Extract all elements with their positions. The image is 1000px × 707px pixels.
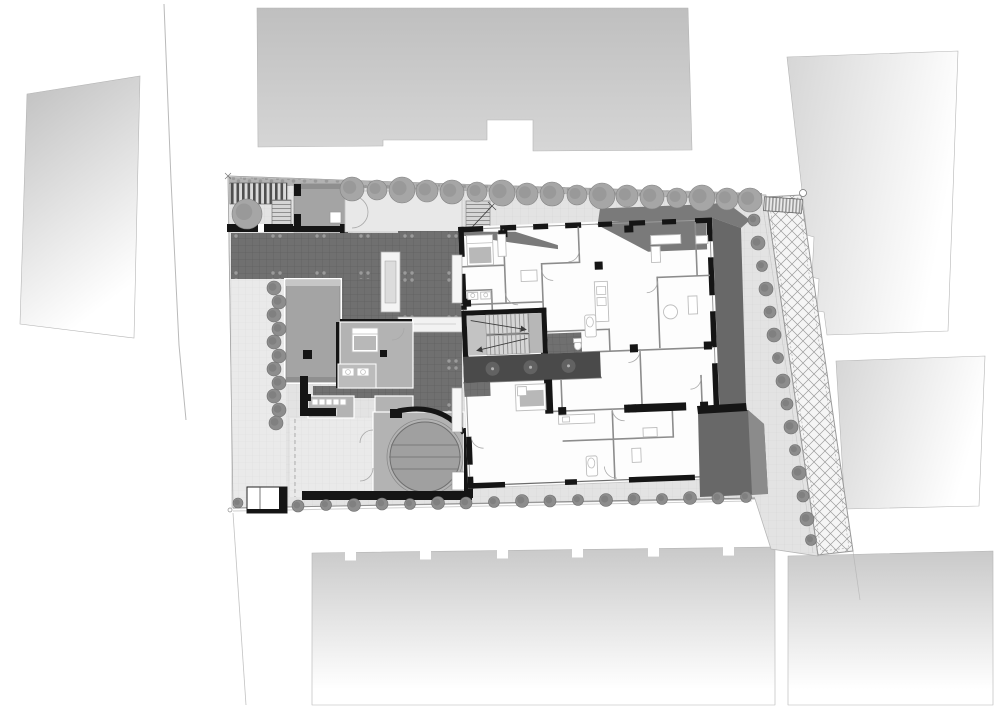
foliage-texture (742, 493, 748, 499)
south-wall (302, 491, 472, 500)
site-plan-canvas (0, 0, 1000, 707)
cabinet (696, 235, 708, 243)
foliage-texture (546, 497, 553, 504)
foliage-texture (794, 468, 802, 476)
kiosk-south-wall (247, 509, 287, 513)
foliage-texture (269, 337, 277, 345)
foliage-texture (574, 496, 580, 502)
garden-wall-gap (258, 224, 264, 232)
bed-blanket (354, 336, 376, 350)
foliage-texture (758, 262, 764, 268)
stair-landing-east (528, 313, 543, 353)
roof-highlight (286, 280, 340, 286)
foliage-texture (433, 498, 440, 505)
foliage-texture (592, 187, 606, 201)
foliage-texture (343, 181, 356, 194)
foliage-texture (274, 351, 282, 359)
foliage-texture (791, 446, 797, 452)
street-edge-west (164, 4, 186, 420)
window-planter-west (452, 255, 462, 303)
neighbor-block-south (312, 547, 775, 705)
foliage-texture (519, 186, 531, 198)
table (521, 270, 537, 282)
tile-light-dots (231, 233, 398, 279)
neighbor-block-northwest (20, 76, 140, 338)
bathtub (586, 456, 598, 476)
foliage-texture (322, 501, 328, 507)
foliage-texture (601, 495, 608, 502)
kiosk-bush (233, 498, 243, 508)
foliage-texture (234, 500, 240, 506)
south-wall-stub (300, 408, 336, 416)
sofa-side (651, 246, 661, 262)
wall-stub (294, 184, 301, 196)
east-building (458, 211, 722, 489)
foliage-texture (274, 405, 282, 413)
foliage-texture (271, 418, 279, 426)
foliage-texture (392, 181, 406, 195)
cabinet (632, 448, 642, 462)
foliage-texture (670, 191, 681, 202)
foliage-texture (443, 184, 456, 197)
foliage-texture (685, 493, 692, 500)
sofa (651, 234, 681, 244)
boundary-line-southwest (233, 513, 246, 705)
foliage-texture (643, 189, 656, 202)
roof-volume-main (286, 280, 340, 382)
pillow (517, 386, 526, 395)
foliage-texture (419, 183, 431, 195)
foliage-texture (778, 376, 786, 384)
foliage-texture (719, 191, 731, 203)
foliage-texture (692, 189, 706, 203)
foliage-texture (741, 192, 754, 205)
foliage-texture (378, 500, 385, 507)
foliage-texture (269, 310, 277, 318)
foliage-texture (802, 514, 810, 522)
foliage-texture (766, 308, 773, 315)
stair-flight-lower (486, 334, 530, 355)
foliage-texture (761, 284, 769, 292)
hall-alcove (452, 472, 466, 490)
dining-table (663, 305, 678, 320)
foliage-texture (630, 495, 637, 502)
foliage-texture (619, 188, 631, 200)
foliage-texture (799, 492, 806, 499)
foliage-texture (406, 500, 412, 506)
foliage-texture (492, 184, 506, 198)
column (303, 350, 312, 359)
foliage-texture (543, 186, 556, 199)
cabinet (643, 427, 657, 437)
neighbor-block-north (257, 8, 692, 151)
survey-marker (800, 190, 807, 197)
foliage-texture (807, 536, 813, 542)
foliage-texture (236, 204, 253, 221)
neighbor-block-east (836, 356, 985, 509)
foliage-texture (370, 183, 381, 194)
foliage-texture (269, 364, 277, 372)
southwest-terrace (290, 418, 373, 497)
foliage-texture (753, 238, 761, 246)
survey-point-southwest (228, 508, 232, 512)
bathtub (585, 315, 597, 337)
site-plan-svg (0, 0, 1000, 707)
garden-wall (293, 226, 342, 232)
rooflight (330, 212, 341, 223)
foliage-texture (714, 494, 721, 501)
specimen-tree (232, 199, 262, 229)
foliage-texture (462, 499, 469, 506)
stair-core (461, 308, 548, 357)
foliage-texture (786, 422, 794, 430)
foliage-texture (517, 496, 524, 503)
stair-landing-west (467, 315, 488, 356)
foliage-texture (269, 283, 277, 291)
foliage-texture (274, 324, 282, 332)
column (380, 350, 387, 357)
tile-patch (464, 382, 491, 397)
kitchen-counter (558, 414, 594, 424)
wall-stub (390, 409, 402, 418)
foliage-texture (783, 400, 790, 407)
foliage-texture (750, 216, 757, 223)
foliage-texture (774, 354, 780, 360)
wardrobe (497, 234, 506, 256)
foliage-texture (294, 502, 301, 509)
window-planter-west (452, 388, 462, 432)
foliage-texture (470, 185, 481, 196)
foliage-texture (658, 495, 664, 501)
foliage-texture (570, 188, 581, 199)
foliage-texture (490, 498, 496, 504)
foliage-texture (274, 378, 282, 386)
planter (385, 261, 396, 303)
wall-stub (294, 214, 301, 226)
foliage-texture (269, 391, 277, 399)
grating-bridge (764, 197, 803, 214)
roof-shade (286, 377, 340, 382)
foliage-texture (274, 297, 282, 305)
kiosk (247, 487, 287, 513)
neighbor-block-southeast (788, 551, 993, 705)
foliage-texture (769, 330, 777, 338)
desk (688, 296, 698, 314)
foliage-texture (349, 500, 356, 507)
